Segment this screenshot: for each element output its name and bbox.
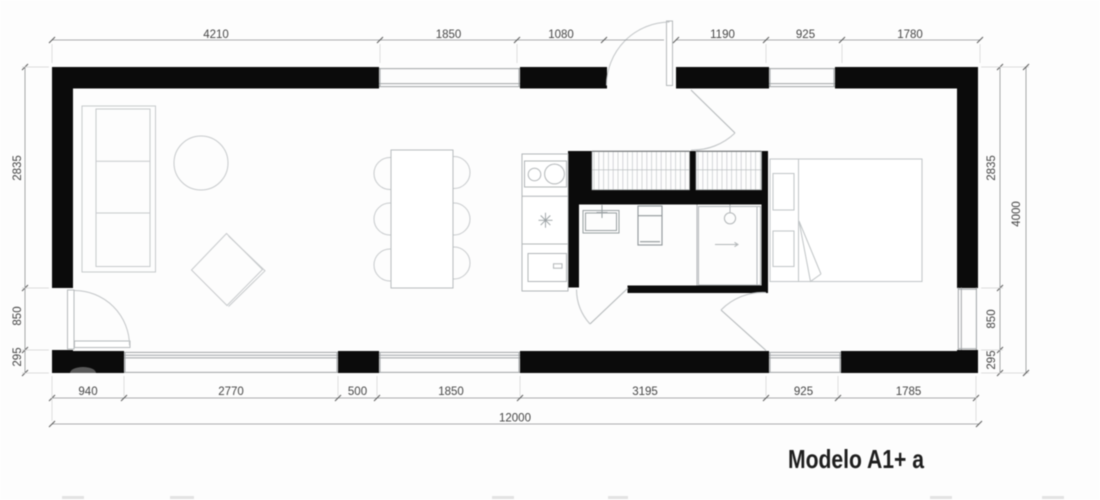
svg-text:2835: 2835 <box>986 155 998 181</box>
svg-text:2835: 2835 <box>12 155 24 181</box>
svg-text:940: 940 <box>78 386 97 398</box>
svg-text:295: 295 <box>986 350 998 369</box>
svg-text:3195: 3195 <box>632 386 658 398</box>
svg-text:1780: 1780 <box>897 29 923 41</box>
svg-text:Modelo A1+ a: Modelo A1+ a <box>788 444 924 474</box>
svg-text:4000: 4000 <box>1011 201 1023 227</box>
svg-text:1080: 1080 <box>548 29 574 41</box>
svg-text:925: 925 <box>794 386 813 398</box>
svg-text:925: 925 <box>796 29 815 41</box>
svg-text:2770: 2770 <box>218 386 244 398</box>
svg-text:12000: 12000 <box>499 413 531 425</box>
svg-text:500: 500 <box>348 386 367 398</box>
svg-text:850: 850 <box>986 309 998 328</box>
svg-text:1190: 1190 <box>710 29 735 41</box>
svg-text:850: 850 <box>12 306 24 325</box>
svg-text:1850: 1850 <box>436 29 462 41</box>
svg-text:1850: 1850 <box>438 386 464 398</box>
svg-text:1785: 1785 <box>896 386 922 398</box>
svg-text:4210: 4210 <box>203 29 229 41</box>
svg-text:295: 295 <box>12 347 24 366</box>
